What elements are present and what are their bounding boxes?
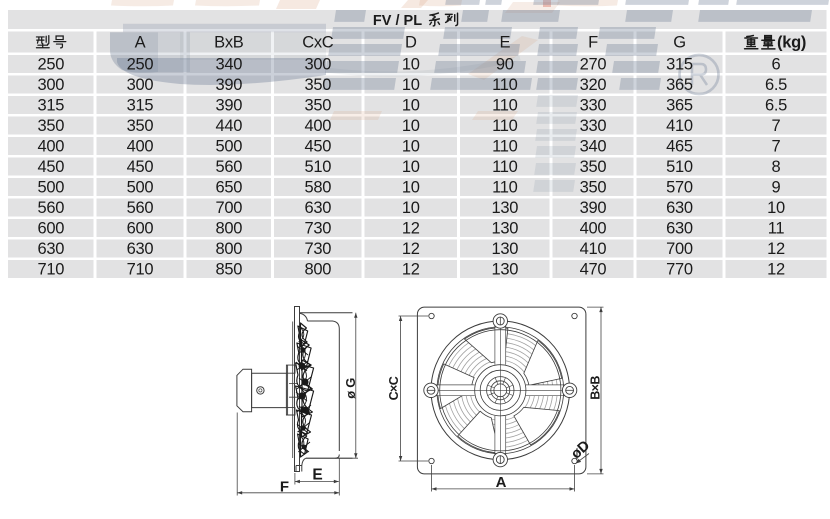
svg-text:600: 600 [127,220,154,238]
svg-text:315: 315 [37,97,64,115]
svg-text:G: G [673,34,686,52]
svg-text:580: 580 [304,179,331,197]
svg-text:10: 10 [402,179,420,197]
svg-text:800: 800 [215,240,242,258]
svg-text:10: 10 [402,199,420,217]
svg-text:400: 400 [580,220,607,238]
svg-text:350: 350 [127,117,154,135]
svg-text:700: 700 [666,240,693,258]
svg-text:10: 10 [402,117,420,135]
svg-text:130: 130 [491,220,518,238]
svg-text:560: 560 [127,199,154,217]
svg-text:130: 130 [491,261,518,279]
svg-text:E: E [312,467,322,484]
svg-text:A: A [135,34,146,52]
svg-text:110: 110 [492,179,518,197]
svg-text:390: 390 [215,76,242,94]
svg-text:315: 315 [127,97,154,115]
svg-text:400: 400 [37,138,64,156]
svg-text:F: F [588,34,598,52]
svg-text:450: 450 [304,138,331,156]
svg-text:650: 650 [215,179,242,197]
svg-text:10: 10 [402,56,420,74]
svg-text:330: 330 [580,117,607,135]
svg-text:440: 440 [215,117,242,135]
svg-text:730: 730 [304,240,331,258]
svg-text:270: 270 [580,56,607,74]
svg-text:FV / PL: FV / PL [373,13,422,29]
svg-text:10: 10 [402,138,420,156]
svg-text:12: 12 [767,240,785,258]
svg-text:(kg): (kg) [777,34,806,52]
svg-text:470: 470 [580,261,607,279]
svg-text:465: 465 [666,138,693,156]
svg-text:770: 770 [666,261,693,279]
svg-text:110: 110 [492,76,518,94]
svg-text:700: 700 [215,199,242,217]
svg-text:8: 8 [772,158,781,176]
svg-text:10: 10 [402,97,420,115]
svg-text:800: 800 [215,220,242,238]
svg-text:øD: øD [568,438,593,463]
svg-text:350: 350 [304,76,331,94]
svg-text:600: 600 [37,220,64,238]
svg-text:365: 365 [666,97,693,115]
svg-text:11: 11 [768,220,785,238]
svg-text:320: 320 [580,76,607,94]
svg-text:350: 350 [580,158,607,176]
svg-text:560: 560 [215,158,242,176]
svg-text:250: 250 [127,56,154,74]
svg-text:6.5: 6.5 [765,76,787,94]
svg-text:12: 12 [767,261,785,279]
svg-text:630: 630 [666,199,693,217]
svg-text:130: 130 [491,240,518,258]
svg-text:6.5: 6.5 [765,97,787,115]
svg-text:500: 500 [127,179,154,197]
svg-text:390: 390 [215,97,242,115]
svg-text:350: 350 [37,117,64,135]
svg-text:350: 350 [580,179,607,197]
svg-text:340: 340 [215,56,242,74]
svg-text:630: 630 [127,240,154,258]
svg-text:450: 450 [127,158,154,176]
svg-text:365: 365 [666,76,693,94]
svg-text:630: 630 [666,220,693,238]
svg-text:730: 730 [304,220,331,238]
svg-text:400: 400 [304,117,331,135]
svg-text:560: 560 [37,199,64,217]
svg-text:130: 130 [491,199,518,217]
svg-text:BxB: BxB [214,34,244,52]
svg-text:630: 630 [37,240,64,258]
svg-text:10: 10 [402,76,420,94]
svg-text:C×C: C×C [387,376,401,400]
svg-text:250: 250 [37,56,64,74]
svg-text:410: 410 [666,117,693,135]
svg-text:E: E [499,34,510,52]
svg-text:12: 12 [402,220,420,238]
svg-text:110: 110 [492,117,518,135]
svg-text:10: 10 [402,158,420,176]
svg-text:9: 9 [772,179,781,197]
svg-text:10: 10 [767,199,785,217]
svg-text:400: 400 [127,138,154,156]
svg-text:ø G: ø G [343,378,358,399]
svg-text:D: D [405,34,417,52]
svg-text:410: 410 [580,240,607,258]
svg-text:110: 110 [492,158,518,176]
svg-text:F: F [280,479,289,496]
svg-text:390: 390 [580,199,607,217]
svg-text:630: 630 [304,199,331,217]
svg-text:315: 315 [666,56,693,74]
svg-text:570: 570 [666,179,693,197]
svg-text:7: 7 [772,138,781,156]
svg-text:710: 710 [127,261,154,279]
svg-text:300: 300 [37,76,64,94]
svg-text:850: 850 [215,261,242,279]
svg-text:500: 500 [215,138,242,156]
svg-text:7: 7 [772,117,781,135]
svg-text:12: 12 [402,240,420,258]
svg-text:110: 110 [492,97,518,115]
svg-text:A: A [496,474,507,491]
svg-text:500: 500 [37,179,64,197]
svg-text:510: 510 [666,158,693,176]
svg-text:B×B: B×B [589,376,603,400]
svg-text:300: 300 [304,56,331,74]
svg-text:6: 6 [772,56,781,74]
svg-text:800: 800 [304,261,331,279]
svg-text:450: 450 [37,158,64,176]
svg-text:330: 330 [580,97,607,115]
svg-text:CxC: CxC [302,34,334,52]
svg-text:12: 12 [402,261,420,279]
svg-text:340: 340 [580,138,607,156]
svg-text:300: 300 [127,76,154,94]
svg-text:350: 350 [304,97,331,115]
svg-text:110: 110 [492,138,518,156]
svg-text:710: 710 [37,261,64,279]
svg-text:510: 510 [304,158,331,176]
svg-text:90: 90 [496,56,514,74]
